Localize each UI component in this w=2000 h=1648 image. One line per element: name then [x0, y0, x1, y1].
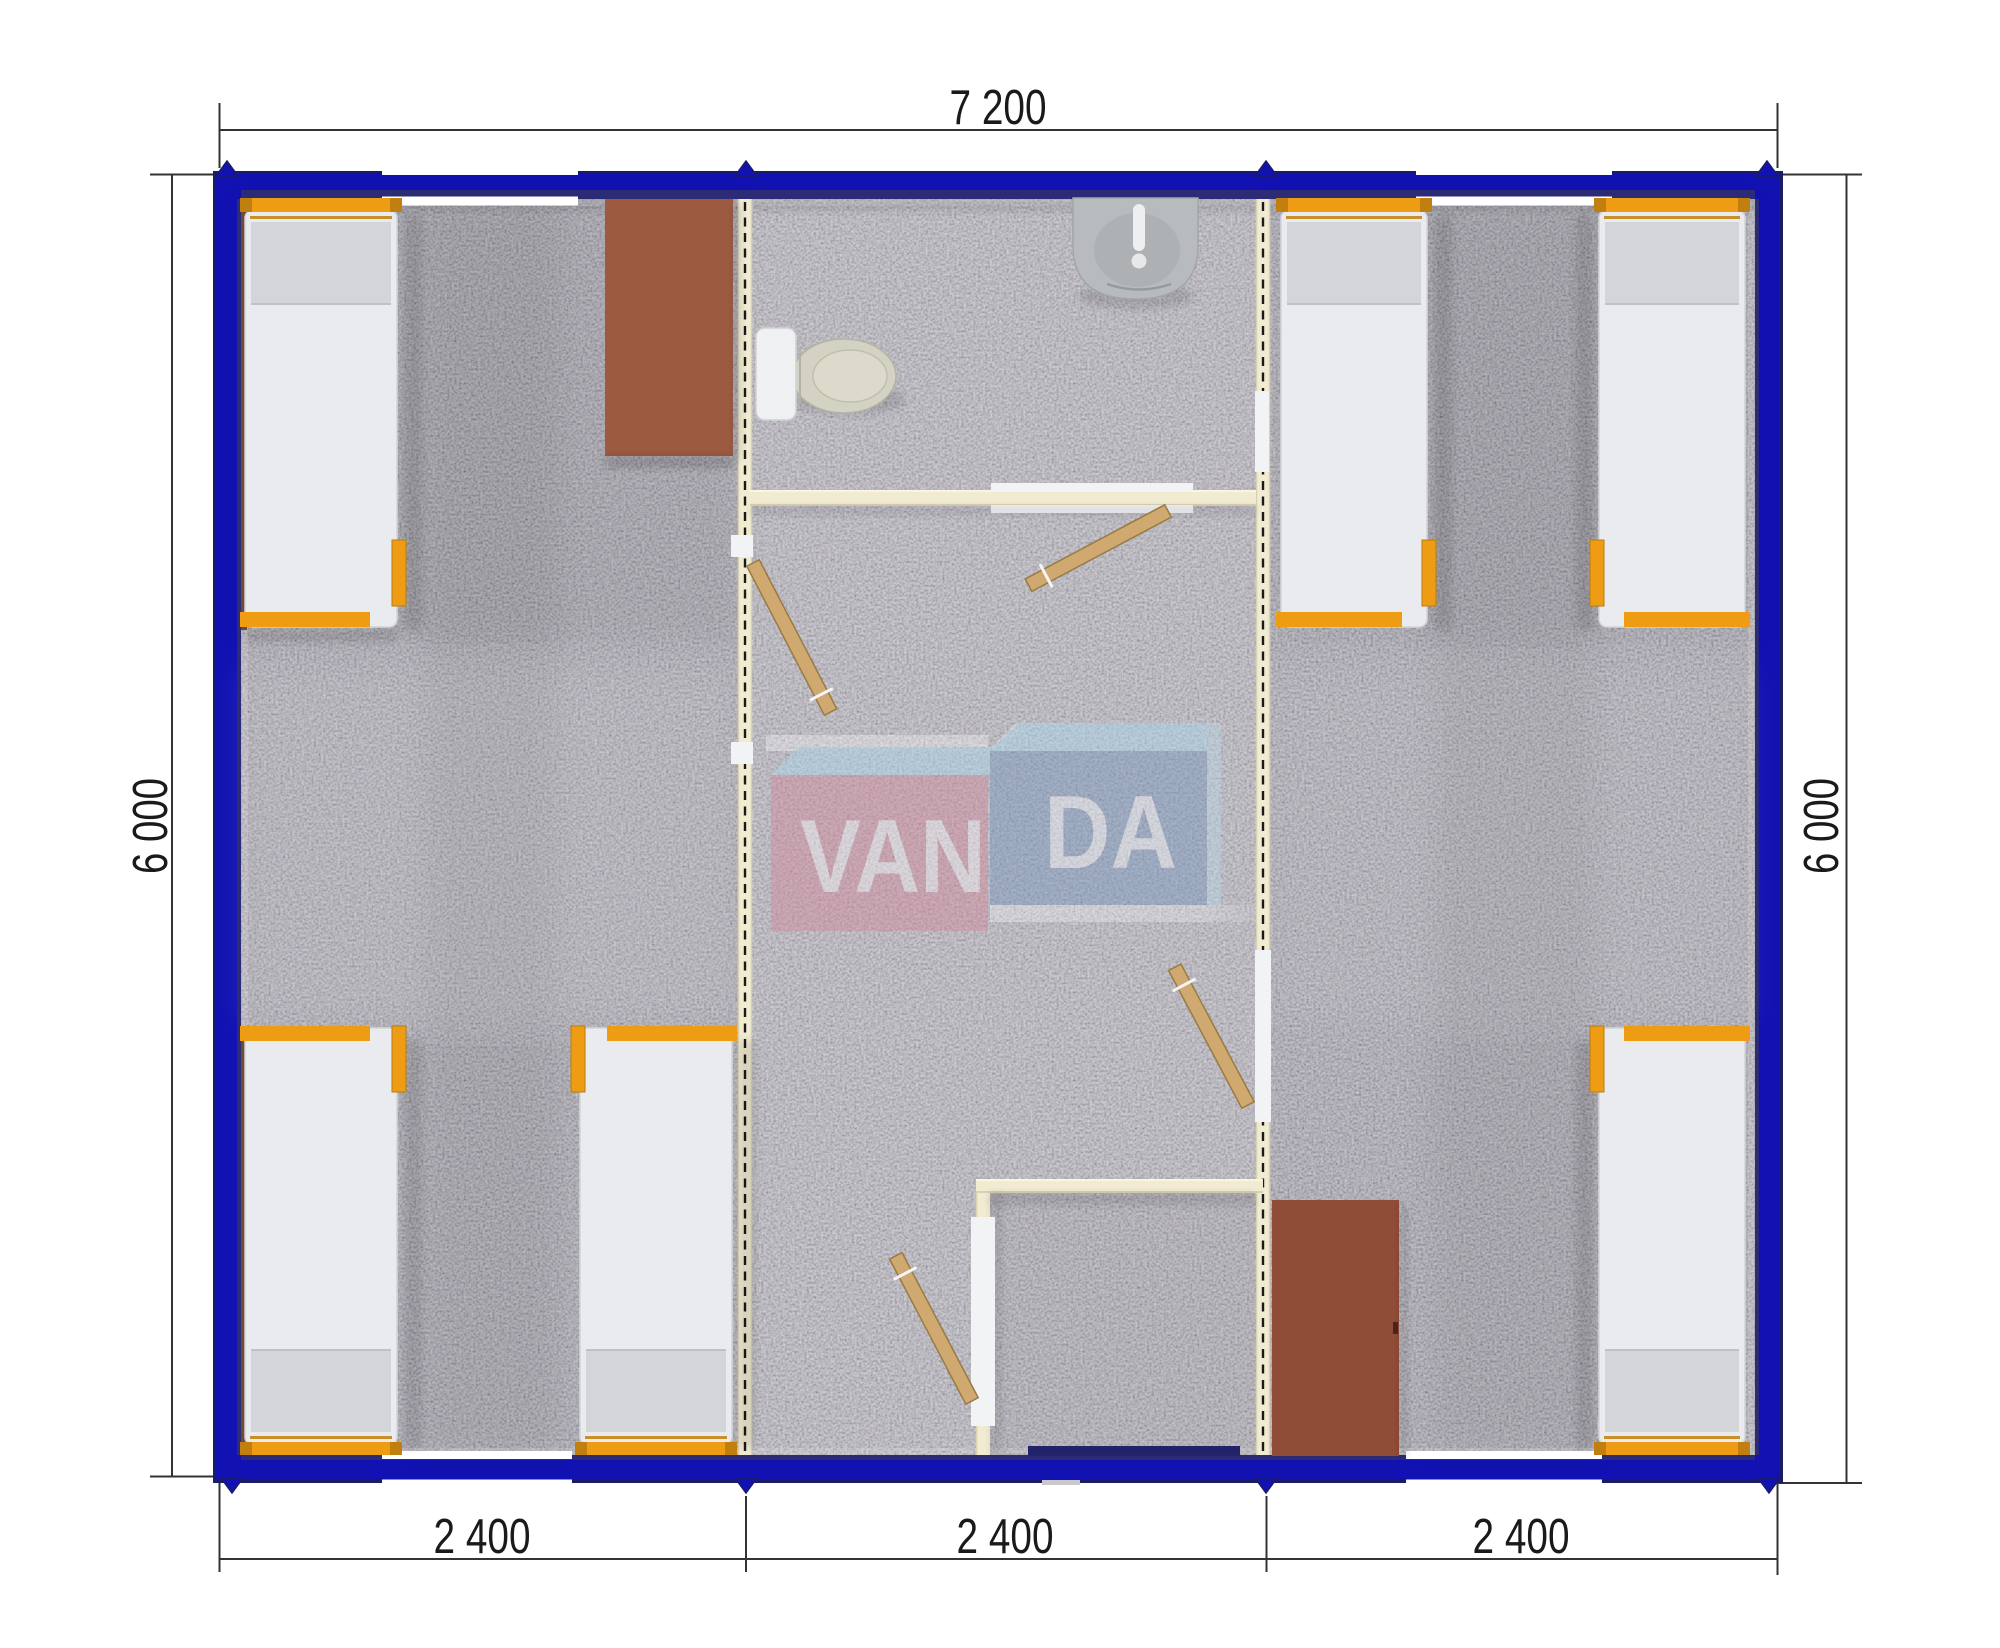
svg-text:2 400: 2 400: [1473, 1510, 1570, 1564]
svg-text:2 400: 2 400: [434, 1510, 531, 1564]
svg-text:DA: DA: [1044, 775, 1177, 891]
svg-text:2 400: 2 400: [957, 1510, 1054, 1564]
svg-text:6 000: 6 000: [1795, 778, 1849, 874]
svg-text:VAN: VAN: [800, 799, 986, 915]
svg-text:6 000: 6 000: [124, 778, 178, 874]
svg-text:7 200: 7 200: [950, 81, 1047, 135]
